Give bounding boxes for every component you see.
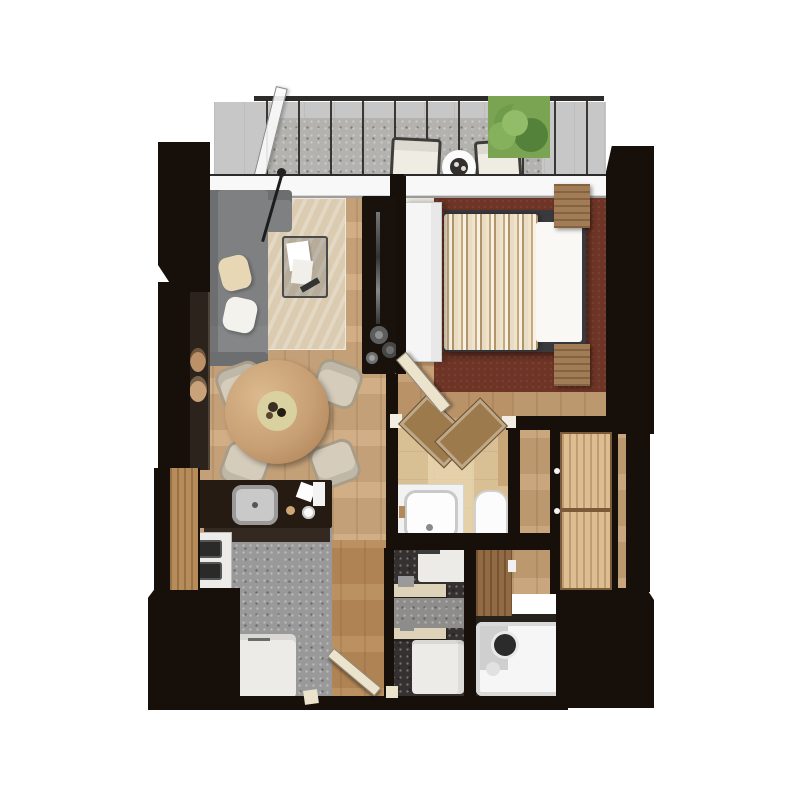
plant-leaf	[502, 110, 528, 136]
bathroom-tile-wall-strip	[498, 428, 508, 486]
console-vase-2	[189, 376, 207, 402]
wall-laundry-left	[384, 548, 394, 698]
entry-threshold-right	[386, 686, 398, 698]
sink-drain	[252, 502, 258, 508]
floor-plan-canvas	[0, 0, 800, 800]
bathroom-soap-bottle	[399, 506, 405, 518]
nightstand-top	[554, 184, 590, 228]
wall-top-left-block	[158, 142, 210, 292]
wall-left	[158, 282, 190, 472]
wall-right-upper-block	[606, 146, 654, 434]
closet-hanger-rail-lower	[560, 510, 612, 590]
closet-knob-1	[554, 468, 560, 474]
console-vase-1	[190, 348, 206, 372]
wall-laundry-divider	[464, 540, 476, 698]
tv-screen-edge	[376, 212, 380, 324]
floor-lamp-head	[277, 168, 286, 177]
table-fruit-3	[266, 412, 273, 419]
kitchen-tall-cabinet	[170, 468, 200, 590]
wall-bathroom-right	[508, 424, 520, 536]
sliding-panel-white	[404, 202, 442, 362]
bath-cabinet-handle	[508, 560, 516, 572]
bathroom-faucet	[426, 524, 433, 531]
counter-tray	[313, 482, 325, 506]
wall-bottom-right-block	[556, 588, 654, 708]
closet-hanger-rail-upper	[560, 432, 612, 510]
console-vase-gray-1	[370, 326, 388, 344]
balcony-table-cup-2	[461, 166, 466, 171]
bed-duvet-striped	[444, 214, 538, 350]
fridge-handle	[248, 638, 270, 641]
step-shelf-item-1	[398, 576, 414, 587]
entry-threshold-left	[303, 689, 319, 705]
table-fruit-2	[277, 408, 286, 417]
bathtub-faucet-cover	[494, 634, 516, 656]
stove-grate-2	[198, 562, 222, 580]
balcony-table-cup	[454, 162, 459, 167]
step-shelf-item-2	[400, 621, 414, 631]
potted-plant	[488, 96, 550, 158]
wall-bathroom-left	[386, 374, 398, 550]
counter-jar	[286, 506, 295, 515]
wall-sill-divider-stub	[390, 174, 404, 198]
bed-mattress	[536, 222, 582, 342]
wall-bottom-left-block	[148, 588, 240, 710]
closet-knob-2	[554, 508, 560, 514]
wall-bottom	[238, 696, 568, 710]
console-vase-gray-3	[366, 352, 378, 364]
washing-machine-bottom	[412, 640, 464, 694]
wall-partition-center	[396, 176, 406, 374]
bathtub-drain	[486, 662, 500, 676]
nightstand-bottom	[554, 344, 590, 386]
stove-grate-1	[198, 540, 222, 558]
counter-bowl	[302, 506, 315, 519]
